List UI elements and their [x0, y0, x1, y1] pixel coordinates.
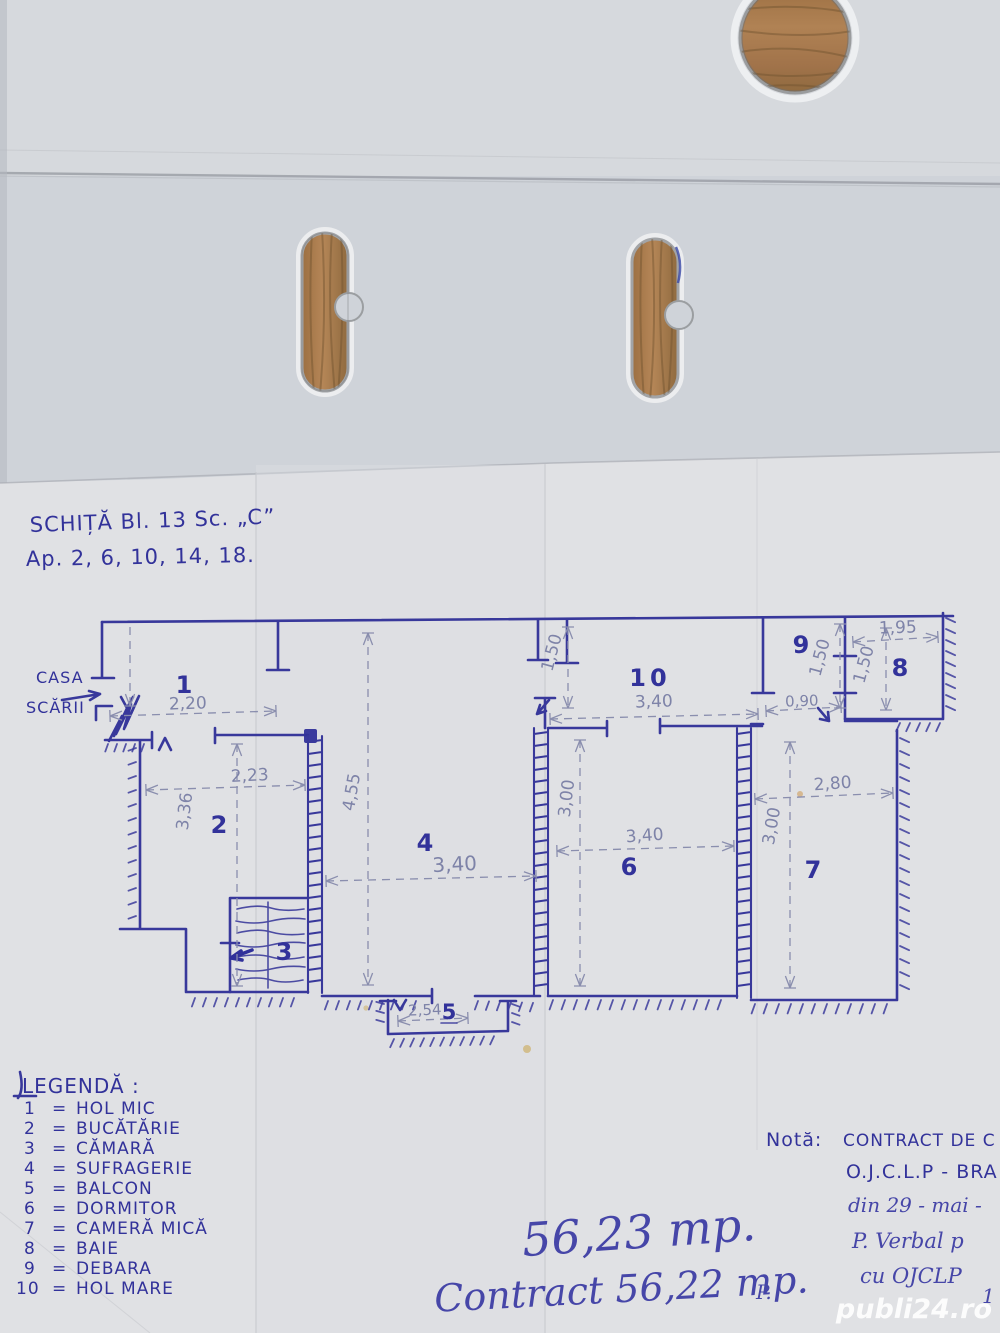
note-fragment-p: P. — [755, 1280, 772, 1304]
binder-hole-top — [734, 0, 858, 99]
room-number-5: 5 — [442, 1000, 457, 1024]
room-number-6: 6 — [621, 853, 638, 881]
binder-hole-left — [299, 230, 363, 394]
room-number-2: 2 — [211, 811, 228, 839]
note-line4: P. Verbal p — [851, 1229, 964, 1253]
room-number-4: 4 — [417, 829, 434, 857]
room-number-9: 9 — [793, 631, 810, 659]
binder-hole-right — [629, 236, 693, 400]
room-number-8: 8 — [892, 654, 909, 682]
staircase-label-line1: CASA — [36, 668, 84, 687]
note-label: Notă: — [766, 1129, 822, 1151]
dim-room10-w: 3,40 — [635, 691, 674, 712]
dim-room8-w: 1,95 — [879, 617, 918, 638]
room-number-10: 10 — [629, 664, 670, 692]
room-number-3: 3 — [276, 938, 293, 966]
note-line5: cu OJCLP — [860, 1264, 963, 1288]
hole-notch — [335, 293, 363, 321]
legend-item-7: 7=CAMERĂ MICĂ — [24, 1217, 208, 1239]
room-number-1: 1 — [176, 671, 193, 699]
dim-room6-w: 3,40 — [625, 825, 664, 848]
watermark: publi24.ro — [835, 1294, 992, 1325]
dim-room7-w: 2,80 — [813, 773, 852, 796]
scene: SCHIȚĂ Bl. 13 Sc. „C” Ap. 2, 6, 10, 14, … — [0, 0, 1000, 1333]
dim-room2-w: 2,23 — [230, 765, 269, 787]
photo-of-floor-plan-sketch: SCHIȚĂ Bl. 13 Sc. „C” Ap. 2, 6, 10, 14, … — [0, 0, 1000, 1333]
title-line2: Ap. 2, 6, 10, 14, 18. — [26, 543, 255, 571]
staircase-label-line2: SCĂRII — [26, 698, 85, 717]
note-line2: O.J.C.L.P - BRA — [846, 1161, 998, 1183]
paper-stain — [797, 791, 803, 797]
hole-notch — [665, 301, 693, 329]
legend-heading: LEGENDĂ : — [22, 1074, 140, 1098]
note-line1: CONTRACT DE C — [843, 1131, 996, 1151]
paper-stain — [523, 1045, 531, 1053]
dim-door9-w: 0,90 — [785, 691, 819, 710]
dim-balcony-w: 2,54 — [408, 1000, 442, 1019]
note-line3: din 29 - mai - — [848, 1193, 982, 1217]
room-number-7: 7 — [805, 856, 822, 884]
dim-room4-w: 3,40 — [432, 851, 478, 877]
paper-stain — [363, 1005, 368, 1010]
